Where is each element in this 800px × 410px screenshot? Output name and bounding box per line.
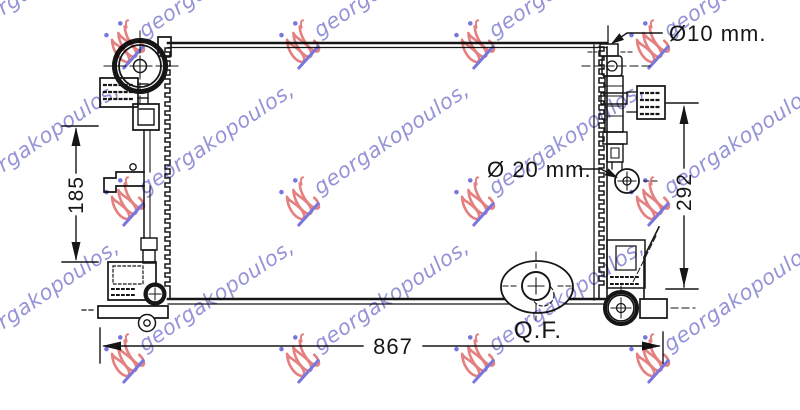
left-tank-fittings [133,104,159,263]
top-inlet-fitting [582,26,650,162]
right-connector-block [627,86,665,119]
side-outlet-fitting [612,162,660,193]
arrow-up-icon [72,127,81,146]
arrow-down-icon [680,268,689,287]
dim-292-label: 292 [673,173,696,211]
radiator-drawing-page: 185 292 867 Ø10 mm. Ø 20 mm. Q.F. [0,0,800,410]
arrow-up-icon [680,105,689,124]
drain-plug [501,252,573,320]
label-diameter-10: Ø10 mm. [611,21,766,46]
dimension-overall-width: 867 [100,328,663,363]
label-quick-fit: Q.F. [514,317,562,344]
core-right-fin-edge [599,47,604,298]
quick-fit-label: Q.F. [514,317,562,344]
arrow-down-icon [72,242,81,261]
left-bottom-mount [82,262,168,332]
arrow-left-icon [102,342,121,351]
arrow-right-icon [642,342,661,351]
diameter-20-label: Ø 20 mm. [487,157,592,182]
leader-arrow-icon [611,33,624,44]
core-left-fin-edge [165,48,170,298]
dim-867-label: 867 [373,334,413,359]
dimension-right-height: 292 [666,103,698,289]
left-mounting-bracket [104,164,144,192]
dimension-left-height: 185 [62,126,98,262]
dim-185-label: 185 [65,176,88,214]
diameter-10-label: Ø10 mm. [669,21,766,46]
radiator-technical-drawing: 185 292 867 Ø10 mm. Ø 20 mm. Q.F. [0,0,800,410]
